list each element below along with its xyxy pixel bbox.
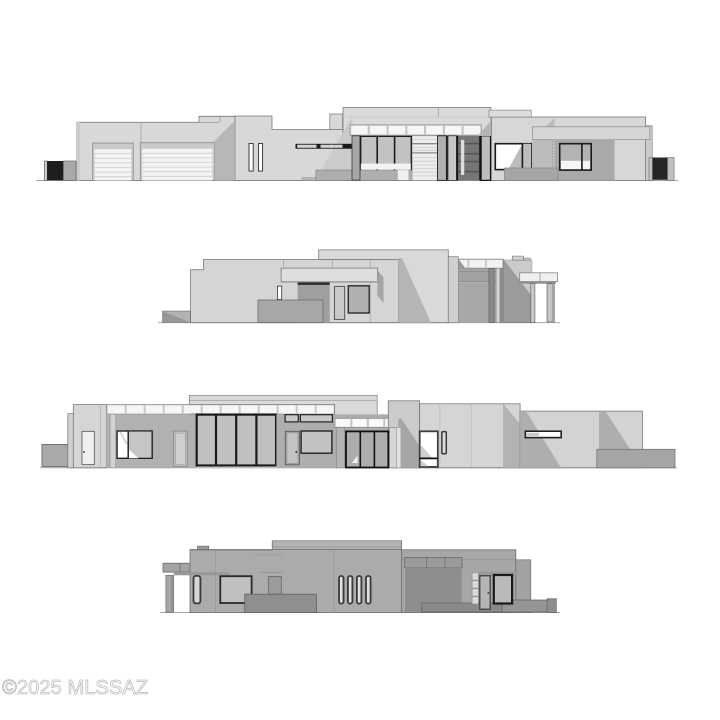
svg-text:©2025 MLSSAZ: ©2025 MLSSAZ <box>2 677 148 699</box>
